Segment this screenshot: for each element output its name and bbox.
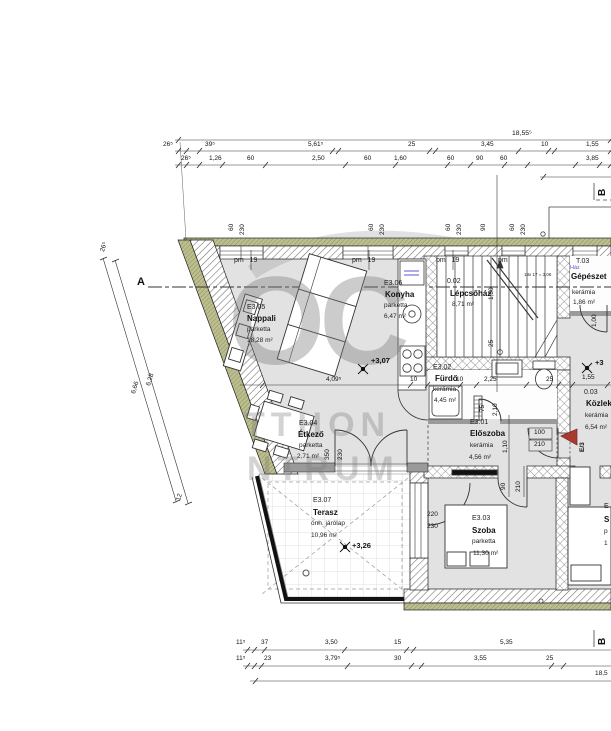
window-dim: 230 [457, 224, 464, 235]
dim: 15 [394, 640, 401, 647]
stair-dim: 1,50 [489, 287, 496, 300]
dim: 39⁵ [205, 142, 215, 149]
dim: 1,26 [209, 156, 222, 163]
floor-plan: OC TTHON NTRUM A B B 18,55⁵ 26⁵ 39⁵ 5,61… [0, 0, 611, 731]
room-name-etkezo: Étkező [298, 431, 324, 439]
dim-top-total: 18,55⁵ [512, 131, 532, 138]
room-area-etkezo: 2,71 m² [297, 454, 319, 461]
room-floor-szoba: parketta [472, 539, 496, 546]
radiator-icon [452, 470, 497, 475]
dim: 25 [408, 142, 415, 149]
room-code-terasz: E3.07 [313, 497, 331, 504]
dim-bottom-total: 18,5 [595, 671, 608, 678]
level-kozlekedo: +3 [595, 359, 604, 367]
dim: 4,09⁵ [326, 377, 341, 384]
room-name-kozlekedo: Közlekedő [586, 400, 611, 408]
dim: 3,79⁵ [325, 656, 340, 663]
room-area-terasz: 10,96 m² [311, 533, 337, 540]
dim: 25 [546, 377, 553, 384]
room-floor-etkezo: parketta [299, 443, 323, 450]
room-code-kozlekedo: 0.03 [584, 389, 598, 396]
door-height: 230 [338, 449, 345, 460]
dim: 26⁵ [181, 156, 191, 163]
window-dim: 60 [510, 224, 517, 231]
room-name-eloszoba: Előszoba [470, 430, 505, 438]
right-room-fragment: p [604, 529, 608, 536]
dim: 60 [500, 156, 507, 163]
room-name-szoba: Szoba [472, 527, 496, 535]
door-width: 1,00 [592, 314, 599, 327]
dim: 11⁵ [236, 640, 245, 647]
level-terasz: +3,26 [352, 542, 371, 550]
dim: 30 [394, 656, 401, 663]
room-floor-eloszoba: kerámia [470, 443, 493, 450]
window-dim: 60 [369, 224, 376, 231]
window-dim: 230 [240, 224, 247, 235]
section-marker-b-bottom: B [598, 638, 608, 645]
room-name-gepeszet: Gépészet [571, 273, 607, 281]
parapet-label: pm 19 [352, 257, 375, 264]
door-width: 90 [501, 483, 508, 490]
toilet-tank [533, 361, 555, 369]
stair-note: 18x 17 = 3,06 [524, 273, 551, 278]
window-dim: 230 [521, 224, 528, 235]
dim: 5,35 [500, 640, 513, 647]
dim: 3,50 [325, 640, 338, 647]
room-code-eloszoba: E3.01 [470, 419, 488, 426]
room-area-konyha: 6,47 m² [384, 314, 406, 321]
parapet-label: pm 19 [234, 257, 257, 264]
dim: 25 [546, 656, 553, 663]
room-code-gepeszet: T.03 [576, 258, 589, 265]
dim-vertical: 1,10 [503, 440, 510, 453]
dim: 26⁵ [163, 142, 173, 149]
parapet-label: pm [498, 257, 508, 264]
room-name-terasz: Terasz [313, 509, 338, 517]
right-room-fragment: E [604, 503, 609, 510]
dim: 3,85 [586, 156, 599, 163]
room-area-szoba: 11,30 m² [473, 551, 498, 558]
door-width: 75 [480, 405, 487, 412]
room-area-nappali: 18,28 m² [247, 338, 273, 345]
window-dim: 230 [380, 224, 387, 235]
window-dim: 90 [481, 224, 488, 231]
dim: 1,55 [586, 142, 599, 149]
room-code-furdo: E3.02 [433, 364, 451, 371]
right-room-fragment: 1 [604, 541, 608, 548]
dim: 11⁵ [236, 656, 245, 663]
window-dim: 60 [446, 224, 453, 231]
room-floor-nappali: parketta [247, 327, 271, 334]
room-floor-gepeszet: kerámia [572, 290, 595, 297]
room-code-etkezo: E3.04 [299, 420, 317, 427]
section-marker-a: A [137, 277, 145, 288]
room-area-lepcsohaz: 8,71 m² [452, 302, 474, 309]
dim: 3,45 [481, 142, 494, 149]
window-height: 230 [427, 524, 438, 531]
level-nappali: +3,07 [371, 357, 390, 365]
room-code-konyha: E3.06 [384, 280, 402, 287]
entrance-label: E/3 [580, 442, 587, 452]
room-name-konyha: Konyha [385, 291, 414, 299]
door-width: 100 [534, 430, 545, 437]
room-name-furdo: Fürdő [435, 375, 458, 383]
dim: 60 [247, 156, 254, 163]
dim: 60 [364, 156, 371, 163]
watermark-text-1: TTHON [244, 406, 391, 445]
dim: 2,50 [312, 156, 325, 163]
room-area-eloszoba: 4,56 m² [469, 455, 491, 462]
window-width: 220 [427, 512, 438, 519]
room-tag-gepeszet: Ház [570, 266, 580, 272]
dim: 5,61⁵ [308, 142, 323, 149]
dim: 3,55 [474, 656, 487, 663]
door-height: 2,10 [493, 403, 500, 416]
room-code-szoba: E3.03 [472, 515, 490, 522]
dim: 1,55 [582, 375, 595, 382]
room-floor-terasz: önh. járólap [311, 521, 345, 528]
parapet-label: pm 19 [436, 257, 459, 264]
dim: 23 [264, 656, 271, 663]
right-room-fragment: S [604, 516, 609, 524]
door-height: 210 [516, 481, 523, 492]
door-width: 350 [325, 449, 332, 460]
room-floor-kozlekedo: kerámia [585, 413, 608, 420]
dim: 10 [410, 377, 417, 384]
dim: 10 [541, 142, 548, 149]
window-dim: 60 [229, 224, 236, 231]
section-marker-b-top: B [598, 189, 608, 196]
dim: 1,60 [394, 156, 407, 163]
door-height: 210 [534, 442, 545, 449]
room-floor-furdo: kerámia [433, 387, 456, 394]
dim: 2,25 [484, 377, 497, 384]
room-area-furdo: 4,45 m² [434, 398, 456, 405]
room-area-gepeszet: 1,86 m² [573, 300, 595, 307]
dim: 60 [447, 156, 454, 163]
dim: 90 [476, 156, 483, 163]
room-area-kozlekedo: 6,54 m² [585, 425, 607, 432]
room-name-lepcsohaz: Lépcsőház [450, 290, 491, 298]
room-name-nappali: Nappali [247, 315, 276, 323]
dim: 37 [261, 640, 268, 647]
stair-dim: 25 [489, 340, 496, 347]
room-code-nappali: E3.05 [247, 304, 265, 311]
room-floor-konyha: parketta [384, 303, 408, 310]
room-code-lepcsohaz: 0.02 [447, 278, 461, 285]
